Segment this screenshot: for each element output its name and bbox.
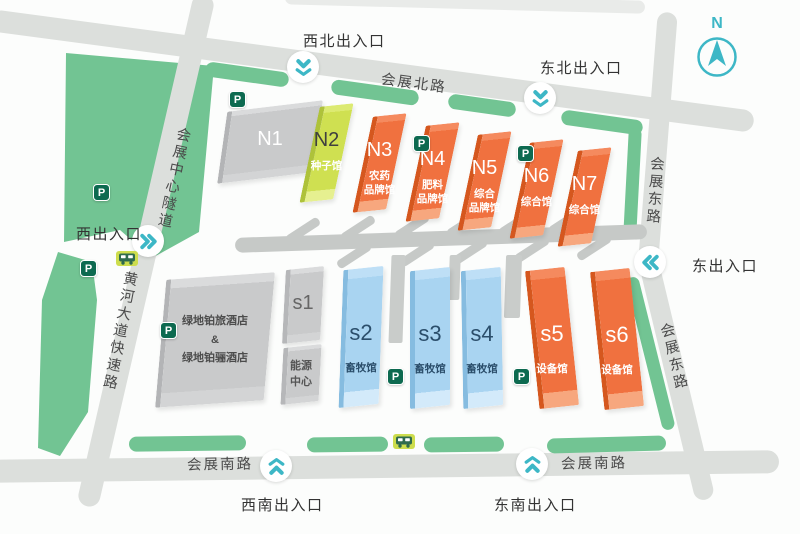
parking-icon: P — [80, 260, 97, 277]
arrow-down-icon — [292, 56, 315, 79]
service-block — [388, 255, 405, 343]
hall-N3: N3 农药品牌馆 — [363, 115, 396, 211]
hall-s6-name: 设备馆 — [597, 364, 637, 378]
arrow-up-icon — [521, 453, 544, 476]
parking-icon: P — [93, 184, 110, 201]
exhibition-center-map: N1 N2 种子馆 N3 农药品牌馆 N4 肥料品牌馆 N5 综合品牌馆 N6 … — [0, 0, 800, 534]
bus-glyph-icon — [395, 436, 413, 448]
entrance-northeast — [524, 82, 556, 114]
hall-N7: N7 综合馆 — [568, 149, 601, 245]
parking-icon: P — [513, 368, 530, 385]
hall-N5-name: 综合品牌馆 — [468, 188, 501, 215]
hall-s4-name: 畜牧馆 — [462, 363, 502, 377]
hall-s2-name: 畜牧馆 — [341, 362, 381, 376]
hall-N3-number: N3 — [363, 139, 396, 162]
entrance-label-east: 东出入口 — [692, 255, 758, 276]
entrance-east — [634, 246, 666, 278]
bus-glyph-icon — [118, 253, 136, 265]
road-label-east-upper: 会展东路 — [642, 155, 668, 226]
hall-s5-name: 设备馆 — [532, 363, 572, 377]
bus-stop-icon — [116, 251, 138, 266]
hall-N4-number: N4 — [416, 148, 449, 171]
parking-icon: P — [517, 145, 534, 162]
hall-N5-shape — [457, 131, 511, 230]
hall-N4-name: 肥料品牌馆 — [416, 179, 449, 206]
road-top-edge — [285, 0, 645, 14]
hall-N5-number: N5 — [468, 157, 501, 180]
entrance-label-southeast: 东南出入口 — [494, 494, 577, 515]
hall-s2: s2 畜牧馆 — [341, 268, 381, 406]
entrance-northwest — [287, 51, 319, 83]
service-block — [504, 255, 522, 318]
hall-N2-number: N2 — [310, 129, 343, 152]
compass-needle-icon — [695, 34, 739, 78]
entrance-southeast — [516, 448, 548, 480]
hall-N6-number: N6 — [520, 165, 553, 188]
park-area-west-lower — [36, 248, 98, 458]
hall-N3-name: 农药品牌馆 — [363, 170, 396, 197]
hall-s3: s3 畜牧馆 — [410, 269, 450, 407]
hall-N5: N5 综合品牌馆 — [468, 133, 501, 229]
hall-s4: s4 畜牧馆 — [462, 269, 502, 407]
green-strip — [129, 435, 246, 451]
entrance-label-west: 西出入口 — [76, 223, 142, 244]
hall-s6: s6 设备馆 — [597, 270, 637, 408]
compass-north-label: N — [695, 16, 739, 32]
service-block — [448, 255, 461, 300]
hall-N1-number: N1 — [223, 128, 317, 151]
entrance-label-northeast: 东北出入口 — [540, 57, 623, 78]
hall-s4-number: s4 — [462, 321, 502, 347]
road-label-south-right: 会展南路 — [561, 451, 627, 473]
hall-s1-number: s1 — [284, 292, 322, 315]
hall-s5: s5 设备馆 — [532, 269, 572, 407]
compass: N — [695, 16, 739, 83]
arrow-down-icon — [529, 87, 552, 110]
hall-s3-name: 畜牧馆 — [410, 363, 450, 377]
bus-stop-icon — [393, 434, 415, 449]
arrow-up-icon — [265, 455, 288, 478]
parking-icon: P — [229, 91, 246, 108]
entrance-southwest — [260, 450, 292, 482]
hall-N1: N1 — [223, 106, 317, 178]
hall-N6-name: 综合馆 — [520, 196, 553, 210]
road-label-south-left: 会展南路 — [187, 452, 253, 474]
road-south — [0, 450, 779, 483]
green-strip — [623, 128, 642, 239]
hall-N3-shape — [352, 113, 406, 212]
energy-center-label: 能源 中心 — [282, 346, 320, 403]
hall-s6-number: s6 — [597, 322, 637, 348]
hall-s5-number: s5 — [532, 321, 572, 347]
hall-N2-name: 种子馆 — [310, 160, 343, 174]
chevrons-left-icon — [639, 251, 662, 274]
green-strip — [307, 437, 388, 453]
energy-center-building: 能源 中心 — [282, 346, 320, 403]
hotel-building: 绿地铂旅酒店 & 绿地铂骊酒店 — [161, 276, 269, 404]
hall-N2: N2 种子馆 — [310, 105, 343, 201]
hall-N7-number: N7 — [568, 173, 601, 196]
entrance-label-southwest: 西南出入口 — [241, 494, 324, 515]
hall-s2-number: s2 — [341, 320, 381, 346]
green-strip — [424, 437, 504, 453]
entrance-label-northwest: 西北出入口 — [303, 30, 386, 51]
hall-s3-number: s3 — [410, 321, 450, 347]
parking-icon: P — [387, 368, 404, 385]
hall-s1: s1 — [284, 268, 322, 342]
hall-N7-name: 综合馆 — [568, 204, 601, 218]
hotel-label: 绿地铂旅酒店 & 绿地铂骊酒店 — [161, 276, 269, 404]
